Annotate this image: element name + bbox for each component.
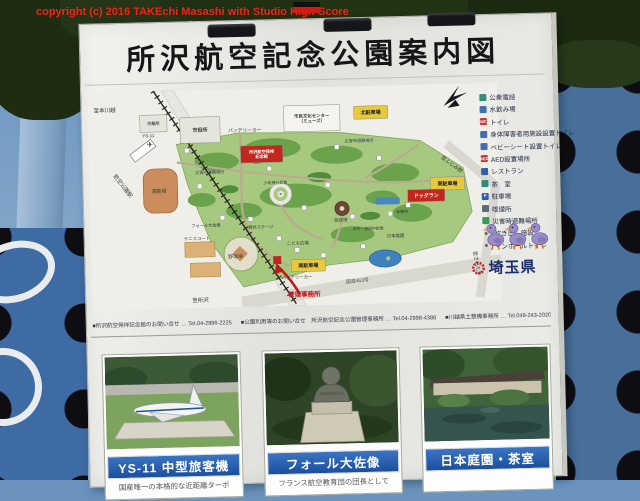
saitama-mascot-icons: [482, 217, 551, 255]
photo-panel-faure: フォール大佐像 フランス航空教育団の団長として: [261, 347, 403, 496]
aed-icon: AED: [481, 155, 488, 162]
photo-desc-garden: [426, 472, 551, 475]
map-box-label: 市役所: [192, 127, 207, 134]
fountain-plaza: [269, 183, 292, 206]
map-label: 休憩所: [396, 208, 408, 214]
smoking-area-icon: [482, 205, 489, 212]
panel-swirl-decoration: [0, 348, 42, 426]
legend-label: 喫煙所: [492, 203, 512, 213]
legend-item: 水飲み場: [479, 103, 551, 115]
faure-statue-photo: [265, 350, 399, 445]
legend-item: WCトイレ: [480, 115, 552, 127]
photo-caption-garden: 日本庭園・茶室: [425, 446, 551, 472]
drinking-fountain-icon: [480, 106, 487, 113]
public-phone-icon: [479, 93, 486, 100]
broadcast-tower: [335, 201, 349, 215]
map-box-label: 南駐車場: [298, 262, 318, 269]
map-label: 野球場: [228, 253, 243, 260]
panel-swirl-decoration: [0, 230, 63, 313]
legend-label: 駐車場: [492, 191, 512, 201]
photo-caption-faure: フォール大佐像: [267, 449, 400, 475]
legend-label: ベビーシート設置トイレ: [490, 140, 562, 152]
legend-item: ベビーシート設置トイレ: [480, 140, 552, 152]
map-box-label: 東駐車場: [437, 180, 457, 187]
map-label: 少年飛行兵像: [263, 179, 287, 186]
legend-label: レストラン: [491, 165, 524, 176]
photo-panel-garden: 日本庭園・茶室: [419, 343, 554, 492]
map-label: バッテリーカー: [228, 127, 262, 134]
baby-seat-toilet-icon: [480, 143, 487, 150]
prefecture-name: 埼玉県: [488, 256, 537, 278]
legend-item: レストラン: [481, 165, 553, 177]
parking-icon: P: [482, 193, 489, 200]
map-label: 運動場: [151, 188, 166, 195]
contact-item: ■所沢航空発祥記念館のお問い合せ … Tel.04-2996-2225: [93, 318, 232, 329]
stream: [376, 197, 400, 205]
restaurant-icon: [481, 168, 488, 175]
sign-title: 所沢航空記念公園案内図: [80, 26, 547, 79]
photo-panel-ys11: YS-11 中型旅客機 国産唯一の本格的な近距離ターボ: [101, 351, 244, 500]
tennis-court: [185, 242, 215, 258]
map-label: YS-11: [142, 133, 155, 138]
japanese-garden-photo: [422, 347, 549, 442]
map-box-label: ドッグラン: [414, 192, 439, 200]
contact-item: ■公園利用等のお問い合せ 所沢航空記念公園管理事務所 … Tel.04-2998…: [241, 313, 437, 326]
park-sign-board: 所沢航空記念公園案内図: [78, 12, 567, 488]
saitama-emblem-icon: [471, 261, 485, 275]
legend-item: 喫煙所: [482, 202, 554, 214]
tree-foliage: [545, 40, 640, 88]
tennis-court: [190, 263, 220, 278]
park-map: 市役所作業所市民文化センター（ミューズ）北駐車場東駐車場南駐車場ドッグラン所沢航…: [87, 83, 502, 311]
legend-label: 水飲み場: [489, 104, 515, 115]
legend-item: 公衆電話: [479, 90, 551, 102]
photo-caption-ys11: YS-11 中型旅客機: [107, 453, 241, 479]
legend-item: 身体障害者用施設設置トイレ: [480, 128, 552, 140]
photo-desc-faure: フランス航空教育団の団長として: [268, 475, 400, 489]
legend-label: AED設置場所: [491, 153, 531, 164]
toilet-icon: WC: [480, 118, 487, 125]
legend-item: AEDAED設置場所: [481, 152, 553, 164]
prefecture-signature: 埼玉県: [471, 256, 537, 279]
legend-label: 公衆電話: [489, 91, 515, 102]
photo-desc-ys11: 国産唯一の本格的な近距離ターボ: [108, 479, 241, 493]
legend-label: 身体障害者用施設設置トイレ: [490, 127, 575, 139]
map-label: ✈: [146, 140, 153, 149]
legend-label: 茶 室: [491, 178, 511, 188]
map-box-label: 北駐車場: [361, 109, 381, 116]
legend-item: 茶 室: [481, 177, 553, 189]
map-label: 木村・徳田中尉像: [352, 226, 383, 232]
office-building: [273, 256, 281, 264]
watermark-badge-bottom: [293, 7, 320, 13]
legend-label: トイレ: [490, 116, 510, 126]
blue-dotted-panel-left: [0, 228, 88, 480]
sign-clip: [323, 18, 371, 32]
accessible-toilet-icon: [480, 131, 487, 138]
legend-item: P駐車場: [482, 189, 554, 201]
sign-clip: [427, 12, 475, 26]
contact-item: ■川越県土整備事務所 … Tel.049-243-2020: [445, 310, 551, 321]
watermark-badge: [293, 2, 320, 13]
tea-room-icon: [481, 180, 488, 187]
ys11-photo: [105, 354, 240, 449]
map-box-label: 市民文化センター（ミューズ）: [294, 112, 330, 125]
